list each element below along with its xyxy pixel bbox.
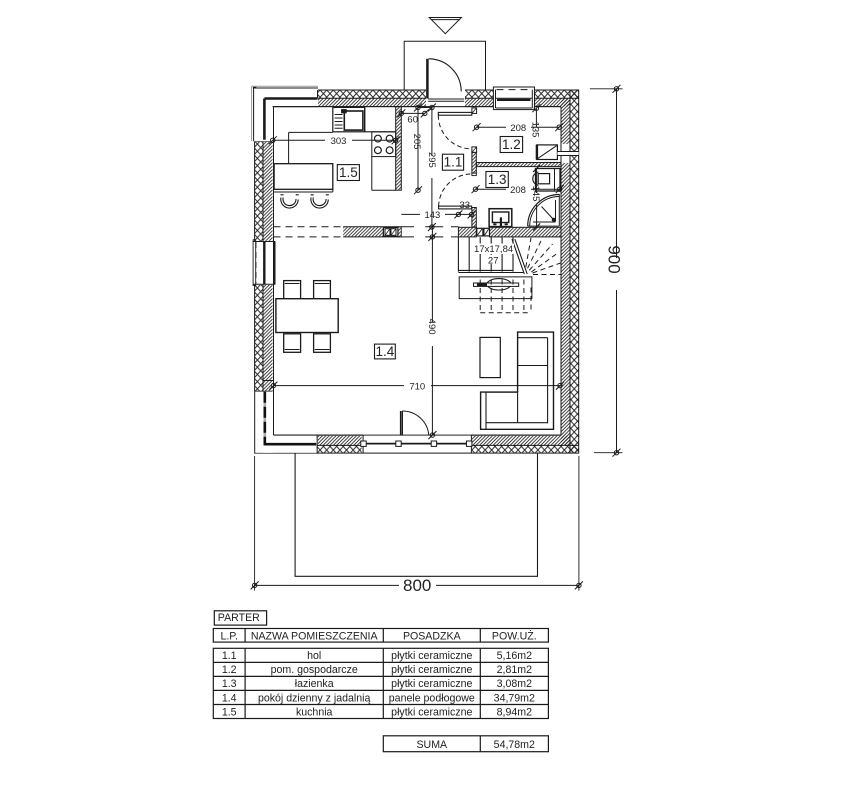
- svg-text:60: 60: [407, 115, 418, 126]
- svg-text:POW.UŻ.: POW.UŻ.: [492, 629, 537, 642]
- svg-text:1.5: 1.5: [222, 706, 237, 718]
- svg-text:PARTER: PARTER: [218, 612, 260, 624]
- svg-text:27: 27: [488, 255, 499, 266]
- svg-text:1.4: 1.4: [376, 344, 395, 359]
- svg-text:490: 490: [426, 319, 437, 335]
- svg-text:płytki ceramiczne: płytki ceramiczne: [391, 678, 472, 690]
- svg-text:płytki ceramiczne: płytki ceramiczne: [391, 664, 472, 676]
- svg-text:710: 710: [409, 381, 425, 392]
- svg-text:208: 208: [510, 123, 526, 134]
- svg-text:POSADZKA: POSADZKA: [403, 630, 462, 642]
- svg-text:208: 208: [510, 185, 526, 196]
- svg-text:3,08m2: 3,08m2: [497, 678, 532, 690]
- svg-text:kuchnia: kuchnia: [296, 706, 333, 718]
- svg-text:płytki ceramiczne: płytki ceramiczne: [391, 706, 472, 718]
- svg-text:800: 800: [403, 576, 431, 595]
- svg-text:900: 900: [605, 245, 624, 273]
- svg-text:54,78m2: 54,78m2: [494, 739, 535, 751]
- svg-text:NAZWA POMIESZCZENIA: NAZWA POMIESZCZENIA: [251, 630, 379, 642]
- svg-text:1.5: 1.5: [339, 165, 358, 180]
- svg-text:17x17,84: 17x17,84: [474, 244, 513, 255]
- svg-text:2,81m2: 2,81m2: [497, 664, 532, 676]
- svg-text:1.2: 1.2: [222, 664, 237, 676]
- svg-text:pom. gospodarcze: pom. gospodarcze: [271, 664, 358, 676]
- svg-text:1.4: 1.4: [222, 692, 237, 704]
- svg-text:hol: hol: [307, 650, 321, 662]
- svg-text:1.3: 1.3: [222, 678, 237, 690]
- svg-text:łazienka: łazienka: [295, 678, 334, 690]
- svg-text:303: 303: [331, 136, 347, 147]
- svg-text:1.3: 1.3: [488, 172, 507, 187]
- svg-text:143: 143: [424, 210, 440, 221]
- svg-text:pokój dzienny z jadalnią: pokój dzienny z jadalnią: [258, 692, 371, 704]
- svg-text:205: 205: [411, 134, 422, 150]
- svg-text:295: 295: [426, 152, 437, 168]
- svg-text:1.1: 1.1: [222, 650, 237, 662]
- svg-text:135: 135: [530, 122, 541, 138]
- svg-text:34,79m2: 34,79m2: [494, 692, 535, 704]
- svg-text:SUMA: SUMA: [416, 739, 448, 751]
- svg-text:1.2: 1.2: [502, 137, 521, 152]
- svg-text:145: 145: [530, 186, 541, 202]
- svg-text:płytki ceramiczne: płytki ceramiczne: [391, 650, 472, 662]
- svg-text:1.1: 1.1: [444, 155, 463, 170]
- svg-text:5,16m2: 5,16m2: [497, 650, 532, 662]
- svg-text:panele podłogowe: panele podłogowe: [389, 692, 475, 704]
- svg-text:8,94m2: 8,94m2: [497, 706, 532, 718]
- svg-text:33: 33: [460, 200, 471, 211]
- svg-text:L.P.: L.P.: [220, 630, 237, 642]
